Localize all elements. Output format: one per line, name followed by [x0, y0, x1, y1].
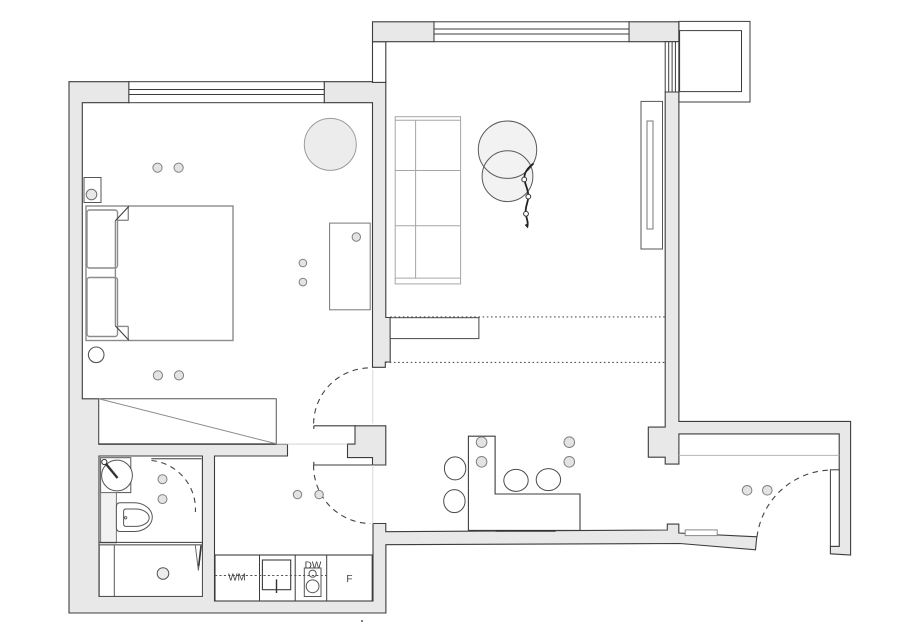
svg-text:DW: DW — [305, 561, 322, 572]
svg-text:F: F — [346, 574, 352, 585]
svg-text:WM: WM — [228, 573, 246, 584]
